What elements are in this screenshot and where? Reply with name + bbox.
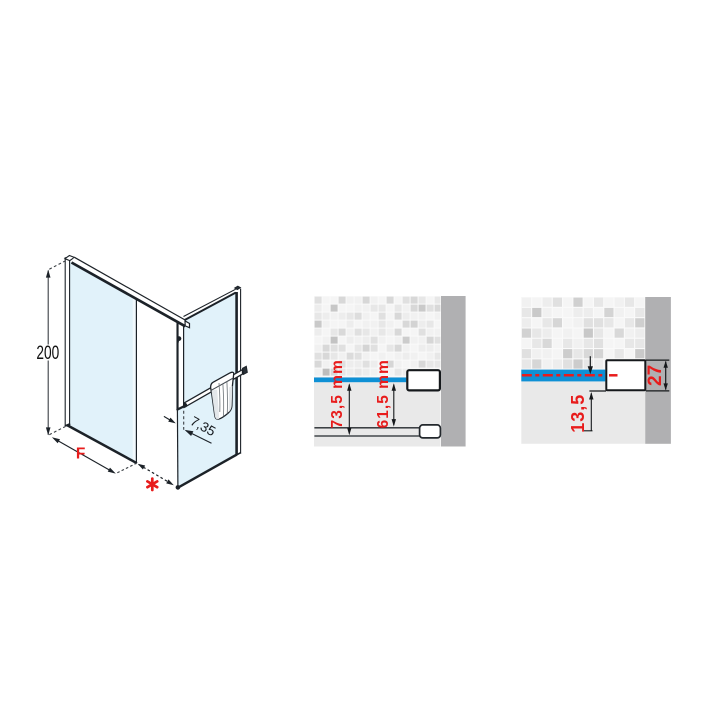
svg-text:61,5 mm: 61,5 mm — [375, 359, 392, 428]
svg-text:13,5: 13,5 — [568, 394, 588, 433]
svg-text:73,5 mm: 73,5 mm — [329, 359, 346, 428]
svg-text:F: F — [76, 446, 85, 463]
svg-text:27: 27 — [645, 365, 666, 386]
svg-text:200: 200 — [36, 342, 59, 364]
